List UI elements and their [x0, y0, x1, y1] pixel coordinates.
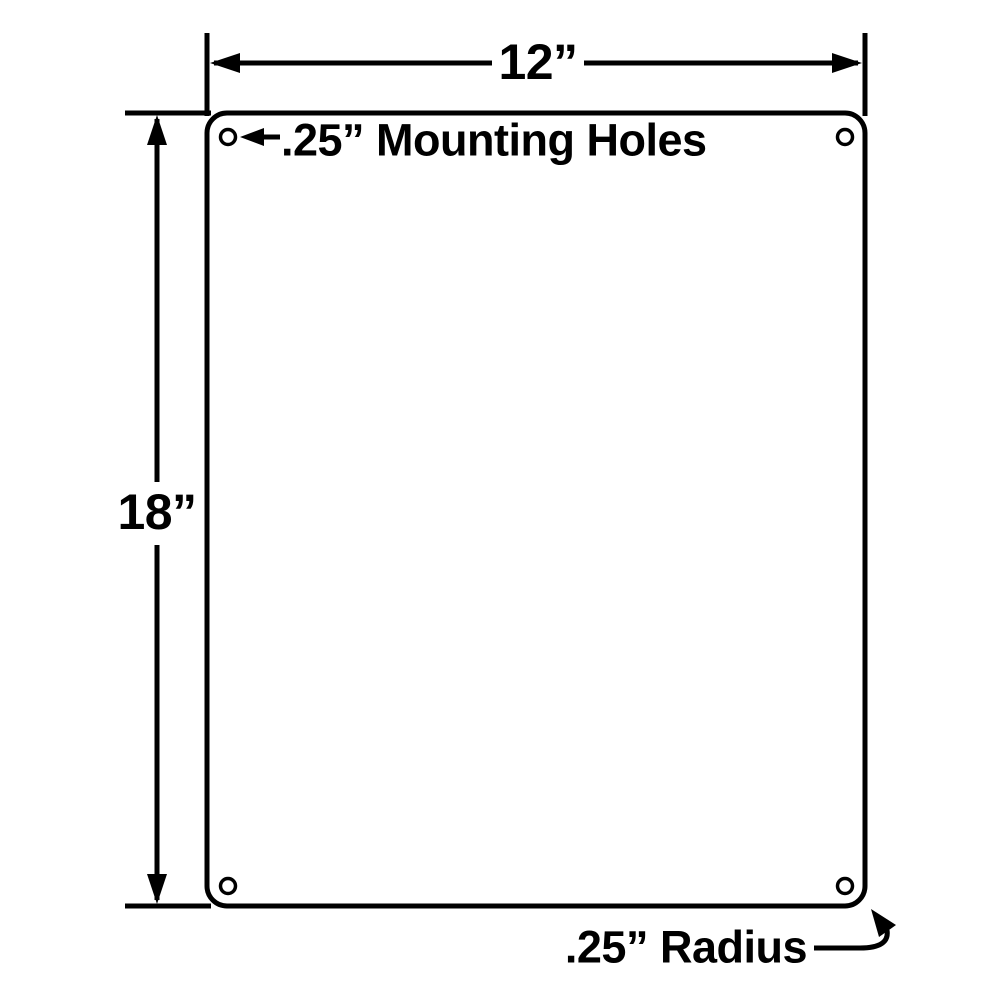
mounting-hole-top-right	[838, 130, 853, 145]
radius-leader-arrowhead	[871, 909, 896, 937]
height-dim-arrowhead-top	[147, 115, 167, 145]
radius-leader-curve	[814, 930, 887, 948]
mounting-hole-bottom-right	[838, 879, 853, 894]
radius-leader-arrow	[814, 909, 896, 948]
plate-outline	[207, 113, 865, 906]
mounting-hole-top-left	[221, 130, 236, 145]
height-dimension-label: 18”	[117, 487, 196, 537]
width-dim-arrowhead-right	[832, 53, 862, 73]
mounting-hole-bottom-left	[221, 879, 236, 894]
corner-radius-label: .25” Radius	[565, 925, 807, 970]
height-dim-arrowhead-bottom	[147, 874, 167, 904]
mounting-holes-label: .25” Mounting Holes	[281, 118, 707, 163]
width-dim-arrowhead-left	[210, 53, 240, 73]
sign-plate-dimension-diagram: 12” 18” .25” Mounting Holes .25” Radius	[0, 0, 1000, 1000]
width-dimension-label: 12”	[498, 37, 577, 87]
